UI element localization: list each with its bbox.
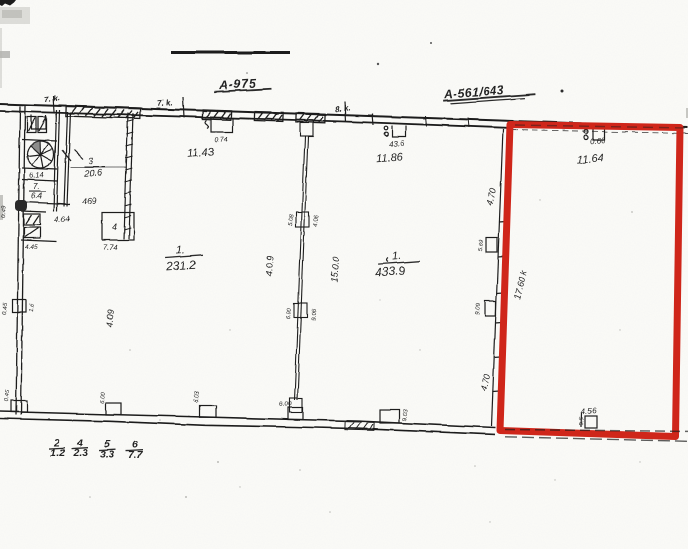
svg-text:11.43: 11.43: [187, 146, 215, 160]
svg-text:6.00: 6.00: [100, 391, 107, 404]
svg-text:0.74: 0.74: [214, 137, 228, 145]
svg-text:43.6: 43.6: [389, 139, 406, 149]
svg-text:9.06: 9.06: [311, 308, 318, 321]
svg-text:9.09: 9.09: [475, 302, 482, 315]
svg-text:11.86: 11.86: [376, 151, 404, 165]
svg-text:0.45: 0.45: [4, 389, 11, 402]
svg-text:0.49: 0.49: [1, 205, 8, 218]
svg-text:1.6: 1.6: [29, 303, 35, 312]
svg-text:9.03: 9.03: [402, 408, 409, 421]
svg-text:3: 3: [88, 156, 94, 166]
svg-text:2.3: 2.3: [72, 448, 88, 460]
svg-text:4.64: 4.64: [54, 214, 71, 224]
svg-text:3.3: 3.3: [100, 449, 115, 461]
svg-text:4: 4: [112, 222, 117, 232]
svg-text:5.69: 5.69: [478, 238, 485, 251]
svg-text:6.14: 6.14: [29, 170, 44, 180]
svg-text:20.6: 20.6: [83, 167, 102, 178]
svg-text:4.06: 4.06: [313, 214, 320, 227]
svg-text:4.0.9: 4.0.9: [264, 256, 275, 277]
svg-text:6.03: 6.03: [194, 390, 201, 403]
svg-text:4.45: 4.45: [25, 244, 38, 251]
svg-text:1.: 1.: [392, 250, 402, 263]
svg-text:0.66: 0.66: [590, 136, 607, 146]
svg-text:231.2: 231.2: [165, 257, 197, 273]
svg-text:1.: 1.: [176, 244, 186, 257]
svg-text:4.56: 4.56: [581, 407, 598, 417]
svg-text:7.7: 7.7: [128, 449, 144, 461]
svg-text:7. k.: 7. k.: [157, 98, 173, 109]
svg-text:6.00: 6.00: [286, 307, 293, 320]
svg-text:6.00: 6.00: [279, 401, 292, 409]
svg-text:7. k.: 7. k.: [44, 94, 60, 105]
svg-text:433.9: 433.9: [375, 263, 406, 279]
svg-text:1.2: 1.2: [50, 447, 65, 459]
svg-text:0.45: 0.45: [2, 302, 9, 315]
svg-text:7.74: 7.74: [103, 243, 118, 252]
svg-text:5.08: 5.08: [288, 213, 295, 226]
svg-text:469: 469: [82, 196, 98, 207]
svg-text:11.64: 11.64: [577, 152, 604, 166]
svg-text:6.4: 6.4: [31, 192, 43, 201]
svg-text:8. k.: 8. k.: [335, 104, 351, 115]
svg-text:7.: 7.: [33, 182, 40, 191]
svg-text:4.09: 4.09: [105, 309, 116, 327]
